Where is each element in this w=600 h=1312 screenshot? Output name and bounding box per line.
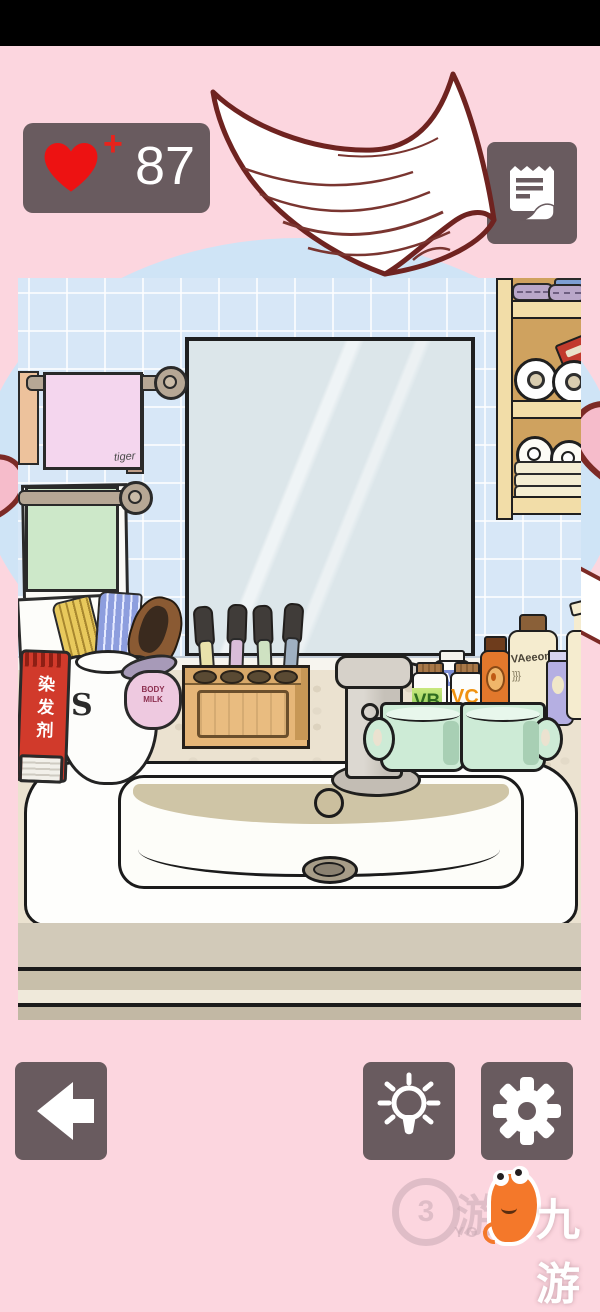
- shelf-board: [505, 300, 581, 319]
- lightbulb-icon: [363, 1062, 455, 1160]
- holder-top-face: [185, 668, 301, 685]
- status-bar: [0, 0, 600, 46]
- label-squiggle: }}}: [512, 670, 520, 682]
- watermark-brand: 九游: [536, 1184, 600, 1312]
- cup-handle: [363, 717, 395, 761]
- holder-hole: [247, 670, 271, 684]
- cup-shade: [523, 721, 539, 765]
- towel-rack-cap: [119, 481, 153, 515]
- toothbrush-holder[interactable]: [182, 665, 310, 749]
- mascot-eye: [493, 1170, 509, 1186]
- sink-base: [18, 923, 581, 971]
- tube-ridge: [25, 652, 61, 667]
- floor-band: [18, 971, 581, 990]
- folded-towel-stack[interactable]: [514, 464, 581, 500]
- toilet-paper-roll[interactable]: [552, 360, 581, 404]
- shelf-board: [505, 400, 581, 419]
- pump-lotion-bottle[interactable]: [566, 630, 581, 720]
- cup-shade: [443, 721, 459, 765]
- heart-plus-icon: [39, 136, 103, 198]
- towel-text: tiger: [113, 450, 135, 463]
- watermark-badge: 3: [392, 1178, 460, 1246]
- arrow-left-icon: [15, 1062, 107, 1160]
- wall-shelf[interactable]: [496, 278, 581, 516]
- niugame-mascot-icon: [487, 1170, 541, 1246]
- holder-hole: [274, 670, 298, 684]
- heart-plus-sign: +: [103, 125, 123, 164]
- towel-rack-cap: [154, 366, 188, 400]
- mint-cup-right[interactable]: [460, 702, 546, 772]
- mint-cup-left[interactable]: [380, 702, 466, 772]
- mascot-mouth: [501, 1202, 517, 1214]
- hearts-counter[interactable]: + 87: [23, 123, 210, 213]
- bottle-emblem: [486, 666, 505, 692]
- tube-label: 染发剂: [30, 675, 57, 745]
- bathroom-scene: tiger S S 染发剂 BODY MILK: [18, 278, 581, 1020]
- pot-decor: S: [71, 688, 93, 723]
- jar-label: BODY MILK: [133, 685, 173, 705]
- paper-note[interactable]: [188, 60, 503, 288]
- receipt-icon: [504, 162, 560, 224]
- shelf-board: [505, 496, 581, 515]
- hint-button[interactable]: [363, 1062, 455, 1160]
- hair-dye-tube[interactable]: 染发剂: [18, 649, 71, 783]
- watermark-sub: YO: [454, 1224, 480, 1241]
- cup-rim: [386, 707, 460, 722]
- shelf-post: [496, 278, 513, 520]
- dispenser-top: [335, 655, 413, 689]
- gear-icon: [481, 1062, 573, 1160]
- watermark-badge-number: 3: [418, 1195, 435, 1228]
- holder-hole: [220, 670, 244, 684]
- back-button[interactable]: [15, 1062, 107, 1160]
- cup-rim: [466, 707, 540, 722]
- tube-oval-label: [552, 676, 564, 694]
- mascot-eye: [511, 1166, 529, 1184]
- pink-towel[interactable]: tiger: [43, 372, 143, 470]
- floor-band-light: [18, 990, 581, 1003]
- holder-front-panel: [197, 690, 289, 738]
- settings-button[interactable]: [481, 1062, 573, 1160]
- game-screen: { "hud": { "hearts_count": "87", "heart_…: [0, 0, 600, 1246]
- body-milk-jar[interactable]: BODY MILK: [124, 670, 182, 730]
- holder-hole: [193, 670, 217, 684]
- floor-band: [18, 1007, 581, 1020]
- sink-drain[interactable]: [302, 856, 358, 884]
- tube-cap: [19, 754, 64, 784]
